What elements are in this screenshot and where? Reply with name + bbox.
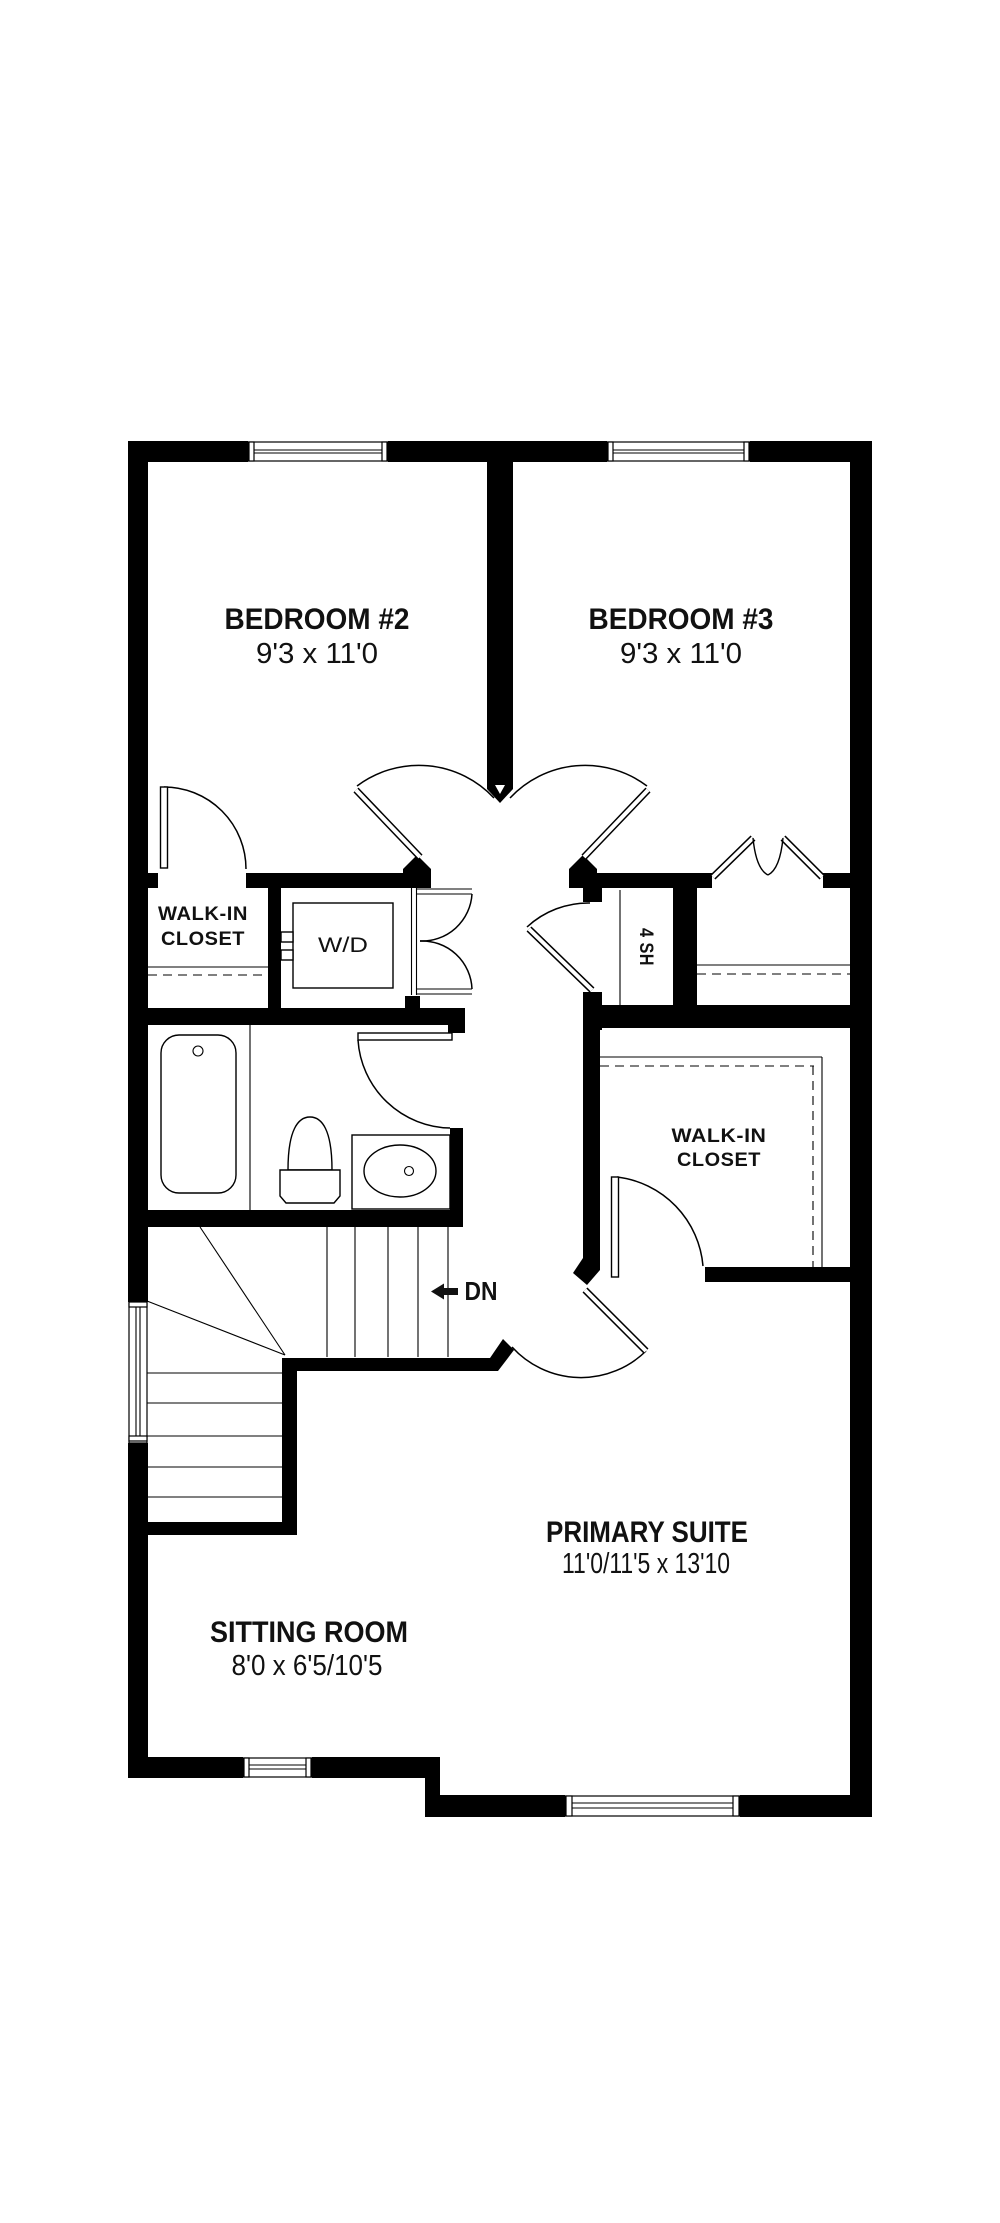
bathroom-door-icon [358, 1033, 452, 1128]
primary-suite-label: PRIMARY SUITE [546, 1516, 748, 1549]
wall-primary-closet-pier [573, 1258, 600, 1285]
wall-left-lower [128, 1443, 148, 1778]
wall-bottom-left-a [128, 1757, 243, 1778]
bedroom2-label: BEDROOM #2 [225, 603, 410, 636]
window-bedroom2-icon [248, 442, 388, 461]
window-bedroom3-icon [607, 442, 750, 461]
primary-suite-door-icon [512, 1290, 646, 1378]
closet-upper-left-door-icon [161, 787, 247, 869]
window-primary-suite-icon [565, 1796, 740, 1816]
window-sitting-room-icon [243, 1758, 312, 1777]
wall-hall-c [597, 873, 712, 888]
washer-dryer-label: W/D [318, 934, 368, 957]
door-pier-bedroom2 [403, 855, 431, 888]
down-arrow-icon [431, 1284, 458, 1300]
wall-bottom-left-b [312, 1757, 440, 1778]
stairs-down-label: DN [465, 1276, 498, 1306]
closet-primary-label-line1: WALK-IN [672, 1126, 767, 1147]
bedroom3-door-icon [510, 765, 648, 857]
door-pier-bedroom3 [569, 855, 597, 888]
wall-right [850, 441, 872, 1817]
bedroom3-dims: 9'3 x 11'0 [620, 638, 742, 670]
wall-stair-east [282, 1358, 297, 1535]
floor-plan: BEDROOM #2 9'3 x 11'0 BEDROOM #3 9'3 x 1… [0, 0, 1000, 2223]
closet-upper-left-label-line1: WALK-IN [158, 904, 248, 925]
wall-primary-closet-west [583, 1028, 600, 1262]
wall-hall-stub-left [148, 873, 158, 888]
wall-bedroom-divider [487, 462, 513, 785]
shelf-count-label: 4 SH [635, 928, 656, 966]
wall-4sh-west-top [583, 888, 602, 902]
wall-stair-south-tip [488, 1339, 514, 1371]
closet-upper-left-label-line2: CLOSET [161, 929, 245, 950]
bathtub-icon [161, 1035, 236, 1193]
bedroom2-dims: 9'3 x 11'0 [256, 638, 378, 670]
wall-4sh-east [673, 888, 697, 1010]
wall-stair-bottom [147, 1522, 297, 1535]
wall-bath-south [128, 1210, 463, 1227]
closet-primary-label-line2: CLOSET [677, 1150, 761, 1171]
shelf-closet-door-icon [527, 903, 592, 990]
wall-bottom-right-b [740, 1795, 872, 1817]
floor-plan-page: BEDROOM #2 9'3 x 11'0 BEDROOM #3 9'3 x 1… [0, 0, 1000, 2223]
laundry-hookup-icon [281, 932, 293, 942]
wall-top-mid [388, 441, 607, 462]
wall-closet-wd-divider [268, 888, 281, 1008]
bedroom3-label: BEDROOM #3 [589, 603, 774, 636]
bedroom2-door-icon [356, 765, 494, 857]
window-stair-icon [129, 1302, 147, 1443]
stair-winder-line [147, 1301, 285, 1355]
wall-bath-north [128, 1008, 465, 1025]
laundry-hookup-icon [281, 950, 293, 960]
wall-bottom-step [425, 1757, 440, 1817]
wall-primary-closet-south [705, 1267, 872, 1282]
toilet-icon [280, 1117, 340, 1203]
wall-wd-corner [405, 996, 420, 1008]
laundry-closet-doors-icon [412, 888, 473, 995]
wall-hall-b [246, 873, 408, 888]
primary-suite-dims: 11'0/11'5 x 13'10 [562, 1548, 730, 1580]
bedroom3-closet-bifold-icon [713, 838, 822, 877]
sitting-room-label: SITTING ROOM [210, 1616, 408, 1649]
stair-winder-line [200, 1227, 285, 1355]
wall-stair-south [282, 1358, 490, 1371]
wall-bottom-right-a [440, 1795, 565, 1817]
wall-closets-south [583, 1005, 872, 1028]
wall-hall-d [823, 873, 850, 888]
wall-bath-east-cap [448, 1025, 465, 1033]
closet-primary-door-icon [612, 1177, 704, 1277]
wall-left-upper [128, 441, 148, 1302]
sitting-room-dims: 8'0 x 6'5/10'5 [232, 1650, 383, 1682]
sink-vanity-icon [352, 1135, 450, 1209]
